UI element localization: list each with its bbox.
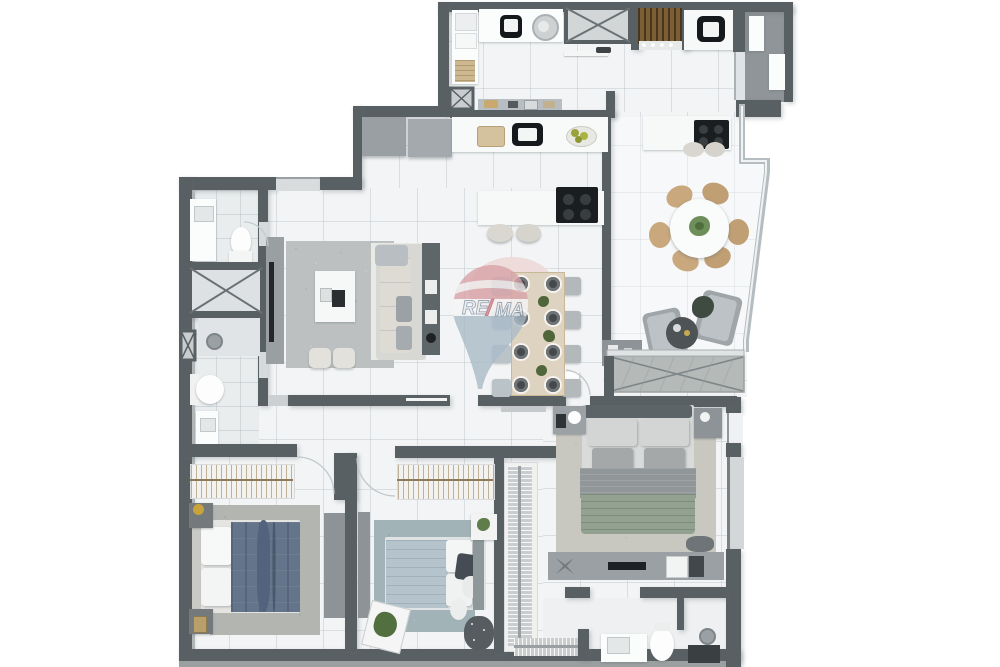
svg-text:MA: MA (495, 300, 525, 321)
